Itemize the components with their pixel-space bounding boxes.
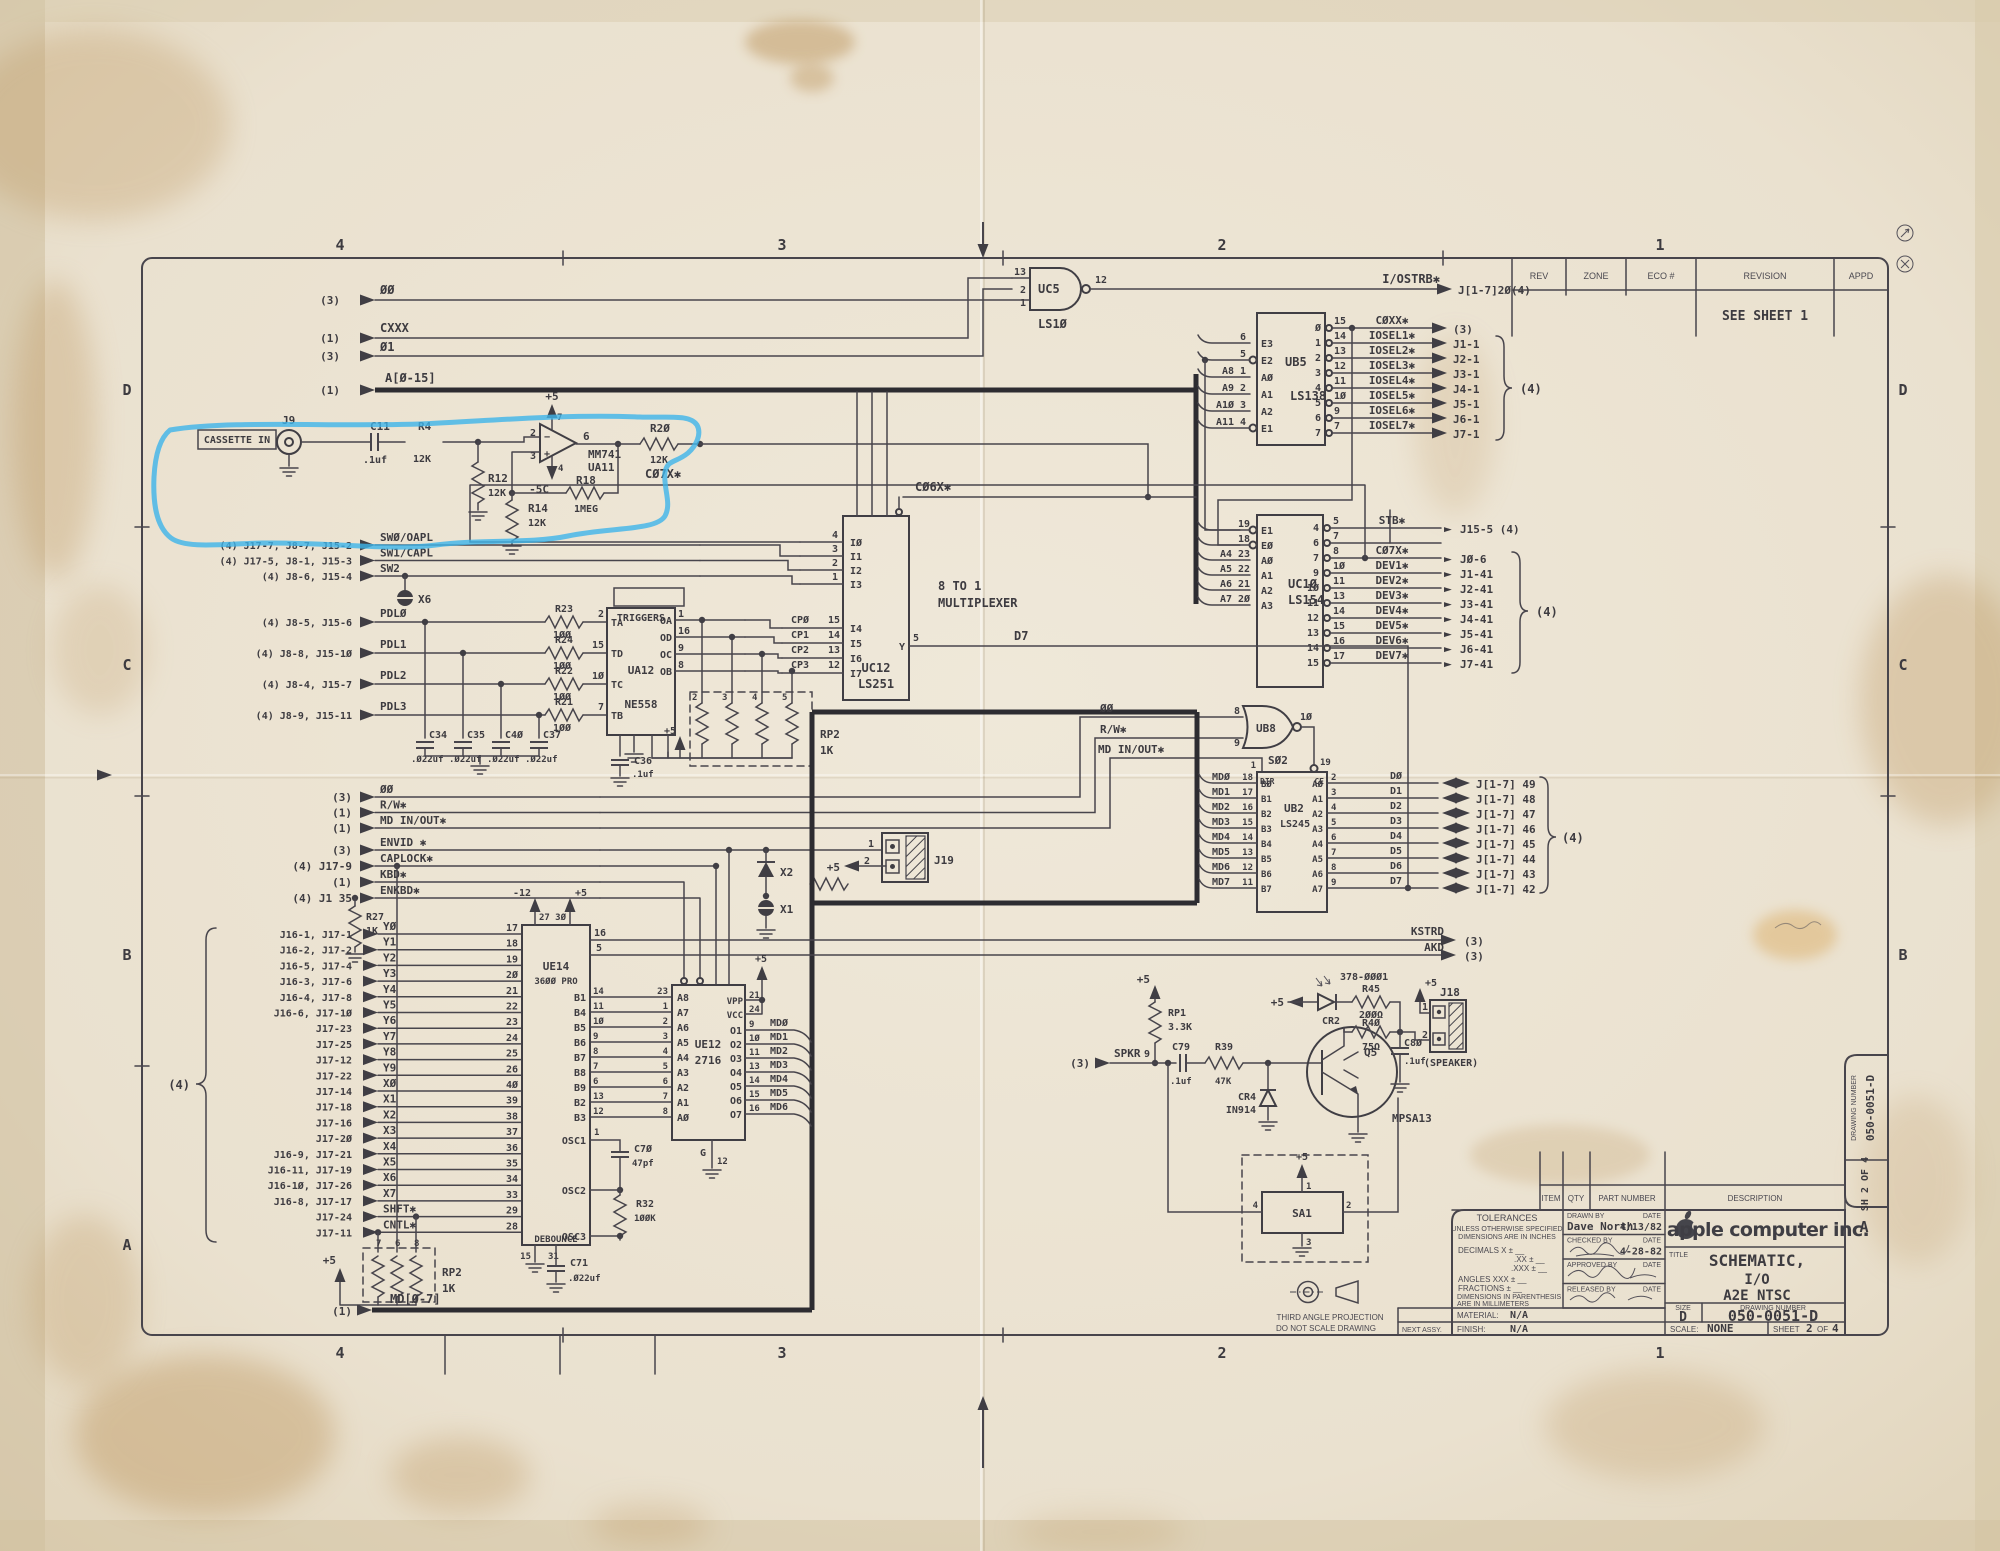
source-label: J16-6, J17-1Ø <box>274 1008 352 1020</box>
pin-label: 11 <box>1242 878 1253 888</box>
net-label: D4 <box>1390 831 1402 842</box>
pin-label: 13 <box>749 1062 760 1072</box>
pin-label: 4 <box>1331 803 1337 813</box>
arrow-icon: ► <box>1444 597 1452 612</box>
pin-label: 9 <box>1334 406 1340 417</box>
ic-pin-name: I4 <box>850 624 862 635</box>
pin-label: 7 <box>598 702 604 713</box>
pin-label: 3 <box>832 544 838 555</box>
ic-pin-name: A2 <box>677 1083 689 1094</box>
net-label: D6 <box>1390 861 1402 872</box>
zone-letter: D <box>1898 381 1907 399</box>
source-label: J16-11, J17-19 <box>268 1166 352 1177</box>
ic-pin-name: B2 <box>574 1098 586 1109</box>
source-label: J17-11 <box>316 1228 352 1239</box>
tolerance-row: .XX ± __ <box>1514 1255 1545 1264</box>
ic-pin-name: TC <box>611 680 623 691</box>
rev-header: REV <box>1530 271 1549 281</box>
ic-pin-name: A4 <box>1312 840 1323 850</box>
finish-label: FINISH: <box>1457 1325 1485 1334</box>
net-label: DEV1✱ <box>1375 559 1408 572</box>
zone-letter: A <box>122 1236 131 1254</box>
projection-note: THIRD ANGLE PROJECTION <box>1276 1313 1383 1322</box>
group-label: (4) <box>1536 605 1558 619</box>
net-label: MD5 <box>1212 847 1230 858</box>
pin-label: 7 <box>1333 531 1339 542</box>
net-label: CAPLOCK✱ <box>380 852 433 865</box>
net-label: MD6 <box>1212 862 1230 873</box>
pin-label: 2 <box>1346 1201 1351 1211</box>
ic-pin-name: B6 <box>1261 870 1272 880</box>
net-label: MD4 <box>1212 832 1230 843</box>
pin-label: 11 <box>749 1048 760 1058</box>
pin-label: 6 <box>583 430 590 443</box>
ic-pin-name: 4 <box>1313 523 1319 534</box>
part-value: 378-ØØØ1 <box>1340 971 1388 983</box>
net-label: CØXX✱ <box>1375 314 1408 327</box>
ic-pin-name: 9 <box>1313 568 1319 579</box>
ic-pin-name: 6 <box>1313 538 1319 549</box>
dest-label: J[1-7] 48 <box>1476 793 1536 806</box>
part-ref: R24 <box>555 635 573 646</box>
ic-pin-name: A7 <box>1312 885 1323 895</box>
net-label: MDØ <box>1212 771 1230 783</box>
pin-label: 14 <box>1242 833 1253 843</box>
net-label: A8 <box>1222 366 1234 377</box>
ic-pin-name: B1 <box>1261 795 1272 805</box>
ic-pin-name: Ø <box>1314 322 1321 334</box>
power-label: -12 <box>513 888 531 899</box>
pin-label: 2 <box>1422 1030 1428 1041</box>
power-label: +5 <box>827 861 840 874</box>
opamp-plus: + <box>544 449 550 460</box>
part-ref: MM741 <box>588 448 621 461</box>
ic-pin-group: TRIGGERS <box>617 613 665 624</box>
drawing-title: A2E NTSC <box>1723 1288 1790 1304</box>
dest-label: J15-5 (4) <box>1460 523 1520 536</box>
pin-label: 8 <box>678 660 684 671</box>
ic-part: LS251 <box>858 677 894 691</box>
net-label: Y7 <box>383 1030 396 1043</box>
ic-pin-name: 7 <box>1315 428 1321 439</box>
source-label: J17-25 <box>316 1040 352 1051</box>
source-label: J17-14 <box>316 1087 352 1098</box>
ic-pin-name: I3 <box>850 580 862 591</box>
net-label: R/W✱ <box>1100 723 1127 736</box>
zone-number: 4 <box>335 236 344 254</box>
pin-label: 26 <box>506 1064 518 1075</box>
qty-label: (1) <box>332 822 352 835</box>
source-label: J16-8, J17-17 <box>274 1197 352 1208</box>
pin-label: 3 <box>722 693 727 703</box>
zone-number: 4 <box>335 1344 344 1362</box>
zone-letter: B <box>122 946 131 964</box>
source-label: J17-23 <box>316 1024 352 1035</box>
net-label: DEV4✱ <box>1375 604 1408 617</box>
pin-label: 14 <box>1333 606 1345 617</box>
ic-pin-name: A1 <box>1261 571 1273 582</box>
material-value: N/A <box>1510 1310 1528 1321</box>
net-label: X2 <box>383 1108 396 1121</box>
pin-label: 28 <box>506 1221 518 1232</box>
sheet-number: 2 <box>1806 1322 1813 1335</box>
pin-label: 21 <box>506 986 518 997</box>
net-label: IOSEL2✱ <box>1369 344 1416 357</box>
pin-label: 8 <box>593 1047 598 1057</box>
pin-label: 14 <box>828 630 840 641</box>
dest-label: J[1-7] 43 <box>1476 868 1536 881</box>
pin-label: 1 <box>1306 1182 1311 1192</box>
net-label: STB✱ <box>1379 514 1406 527</box>
ic-ref: UC12 <box>862 661 891 675</box>
net-label: DØ <box>1390 770 1402 782</box>
title-label: TITLE <box>1669 1252 1688 1259</box>
pin-label: 11 <box>593 1002 604 1012</box>
part-ref: C79 <box>1172 1042 1190 1053</box>
net-label: SHFT✱ <box>383 1203 416 1216</box>
pin-label: 12 <box>717 1157 728 1167</box>
ic-pin-name: E1 <box>1261 526 1273 537</box>
bus-label: MD[Ø-7] <box>390 1292 441 1306</box>
pin-label: 23 <box>657 987 668 997</box>
net-label: A1Ø <box>1216 399 1234 411</box>
part-ref: R21 <box>555 697 573 708</box>
source-label: J16-1, J17-1 <box>280 930 352 941</box>
ic-pin-name: A6 <box>1312 870 1323 880</box>
pin-label: 31 <box>548 1252 559 1262</box>
pin-label: 35 <box>506 1159 518 1170</box>
pin-label: 14 <box>593 987 604 997</box>
net-label: Y8 <box>383 1046 396 1059</box>
net-label: D2 <box>1390 801 1402 812</box>
source-label: J16-1Ø, J17-26 <box>268 1180 352 1192</box>
pin-label: 36 <box>506 1143 518 1154</box>
ic-pin-name: TB <box>611 711 623 722</box>
tab-drawing-number-label: DRAWING NUMBER <box>1851 1075 1858 1141</box>
scanned-schematic-sheet: 4 3 2 1 4 3 2 1 D C B A D C B A REV ZONE… <box>0 0 2000 1551</box>
pin-label: 15 <box>592 640 604 651</box>
ic-part: NE558 <box>624 698 657 711</box>
net-label: PDL3 <box>380 700 407 713</box>
source-label: (4) J17-9 <box>292 860 352 873</box>
ic-pin-name: O5 <box>730 1082 742 1093</box>
net-label: PDL1 <box>380 638 407 651</box>
part-ref: X1 <box>780 903 794 916</box>
ic-pin-name: OB <box>660 667 672 678</box>
net-label: X6 <box>383 1171 397 1184</box>
scale-label: SCALE: <box>1670 1325 1698 1334</box>
zone-letter: B <box>1898 946 1907 964</box>
dest-label: J7-41 <box>1460 658 1493 671</box>
net-label: MD1 <box>770 1032 788 1043</box>
net-label: DEV3✱ <box>1375 589 1408 602</box>
net-label: ØØ <box>379 783 394 796</box>
net-label: X1 <box>383 1093 397 1106</box>
ic-pin-name: I1 <box>850 552 862 563</box>
ic-pin-name: 4 <box>1315 383 1321 394</box>
ic-pin-name: 1 <box>1315 338 1321 349</box>
pin-label: 1Ø <box>593 1016 604 1027</box>
pin-label: 19 <box>506 954 518 965</box>
arrow-icon: ► <box>1444 657 1452 672</box>
part-value: 12K <box>413 454 431 465</box>
pin-label: 15 <box>1242 818 1253 828</box>
ic-type: MULTIPLEXER <box>938 596 1018 610</box>
ic-pin-name: B4 <box>574 1008 586 1019</box>
source-label: (1) <box>332 876 352 889</box>
source-label: (4) J8-8, J15-1Ø <box>256 648 352 660</box>
pin-label: 1Ø <box>1334 390 1346 402</box>
dest-label: J[1-7] 49 <box>1476 778 1536 791</box>
signoff-date-label: DATE <box>1643 1238 1661 1245</box>
ic-pin-name: OA <box>660 616 672 627</box>
zone-number: 3 <box>777 1344 786 1362</box>
pin-label: 3 <box>663 1032 668 1042</box>
source-label: J16-5, J17-4 <box>280 961 352 972</box>
pin-label: 2 <box>1020 285 1026 296</box>
dest-label: J1-41 <box>1460 568 1493 581</box>
arrow-icon: ► <box>1444 522 1452 537</box>
pin-label: 8 <box>1333 546 1339 557</box>
qty-label: (1) <box>332 807 352 820</box>
part-value: 12K <box>650 455 668 466</box>
net-label: Y5 <box>383 999 396 1012</box>
pin-label: 17 <box>1242 788 1253 798</box>
part-ref: X2 <box>780 866 793 879</box>
part-ref: C71 <box>570 1258 588 1269</box>
dest-label: J2-41 <box>1460 583 1493 596</box>
drawing-title: I/O <box>1744 1272 1769 1288</box>
part-ref: R12 <box>488 472 508 485</box>
pin-label: 9 <box>593 1032 598 1042</box>
parts-header: PART NUMBER <box>1598 1194 1656 1203</box>
pin-label: 2 <box>663 1017 668 1027</box>
zone-letter: C <box>122 656 131 674</box>
sheet-total: 4 <box>1832 1322 1839 1335</box>
ic-ref: UE12 <box>695 1038 722 1051</box>
ic-pin-name: 12 <box>1307 613 1319 624</box>
signoff-label: APPROVED BY <box>1567 1262 1618 1269</box>
dest-label: J2-1 <box>1453 353 1480 366</box>
net-label: PDLØ <box>380 607 407 620</box>
pin-label: 13 <box>1334 346 1346 357</box>
pin-label: 13 <box>1333 591 1345 602</box>
net-label: Y1 <box>383 936 397 949</box>
ic-pin-name: B3 <box>1261 825 1272 835</box>
source-label: J16-9, J17-21 <box>274 1150 352 1161</box>
ic-pin-name: A1 <box>1261 390 1273 401</box>
ic-pin-name: B5 <box>574 1023 586 1034</box>
pin-label: 18 <box>506 939 518 950</box>
power-label: +5 <box>1271 996 1284 1009</box>
part-value: .1uf <box>1404 1057 1426 1067</box>
ic-pin-name: B3 <box>574 1113 586 1124</box>
ic-part: 2716 <box>695 1054 722 1067</box>
pin-label: 5 <box>596 943 602 954</box>
net-label: A7 <box>1220 594 1232 605</box>
ic-pin-name: A3 <box>677 1068 689 1079</box>
zone-number: 3 <box>777 236 786 254</box>
ic-part: SØ2 <box>1268 754 1288 767</box>
tolerance-row: ANGLES XXX ± __ <box>1458 1275 1527 1284</box>
signoff-date: 4/13/82 <box>1620 1222 1662 1233</box>
source-label: J16-4, J17-8 <box>280 993 352 1004</box>
rev-header: ECO # <box>1647 271 1674 281</box>
pin-label: 2 <box>1331 773 1336 783</box>
company-name: apple computer inc. <box>1667 1219 1869 1241</box>
ic-pin-name: G <box>700 1148 706 1159</box>
net-label: Y4 <box>383 983 397 996</box>
net-label: MD3 <box>770 1060 788 1071</box>
pin-label: 34 <box>506 1174 518 1185</box>
pin-label: 15 <box>520 1252 531 1262</box>
source-label: (4) J8-5, J15-6 <box>262 618 352 629</box>
qty-label: (3) <box>332 791 352 804</box>
pin-label: 12 <box>593 1107 604 1117</box>
pin-label: 1Ø <box>1333 560 1345 572</box>
net-label: MD3 <box>1212 817 1230 828</box>
part-value: 47K <box>1215 1077 1232 1087</box>
arrow-icon: ► <box>1444 642 1452 657</box>
pin-label: 1 <box>1251 761 1256 771</box>
ic-part: 36ØØ PRO <box>534 976 578 987</box>
pin-label: 6 <box>1331 833 1336 843</box>
scale-value: NONE <box>1707 1322 1734 1335</box>
pin-label: 9 <box>1331 878 1336 888</box>
ic-ref: UE14 <box>543 960 570 973</box>
ic-pin-name: AØ <box>1312 779 1323 790</box>
net-label: D7 <box>1390 876 1402 887</box>
dest-label: J6-1 <box>1453 413 1480 426</box>
pin-label: 3Ø <box>555 912 566 923</box>
net-label: A4 <box>1220 549 1232 560</box>
power-label: +5 <box>323 1254 336 1267</box>
connector-ref: J19 <box>934 854 954 867</box>
ic-pin-name: I2 <box>850 566 862 577</box>
source-label: J17-16 <box>316 1118 352 1129</box>
ic-ref: UA11 <box>588 461 615 474</box>
part-value: 12K <box>488 488 506 499</box>
ic-part: LS1Ø <box>1038 317 1068 331</box>
part-value: .1uf <box>1170 1077 1192 1087</box>
ic-ref: UB8 <box>1256 722 1276 735</box>
tab-sheet: SH 2 OF 4 <box>1860 1157 1871 1211</box>
net-label: IOSEL3✱ <box>1369 359 1416 372</box>
ic-pin-name: DEBOUNCE <box>534 1235 577 1245</box>
pin-label: 9 <box>749 1020 754 1030</box>
pin-label: 1 <box>1422 1002 1428 1013</box>
ic-pin-name: AØ <box>1261 555 1273 567</box>
dest-label: (3) <box>1464 950 1484 963</box>
net-label: R/W✱ <box>380 799 407 812</box>
net-label: DEV2✱ <box>1375 574 1408 587</box>
ic-pin-name: AØ <box>677 1112 689 1124</box>
net-label: SW2 <box>380 562 400 575</box>
net-label: PDL2 <box>380 669 407 682</box>
pin-label: 24 <box>506 1033 518 1044</box>
net-label: D1 <box>1390 786 1402 797</box>
ic-pin-name: A1 <box>677 1098 689 1109</box>
net-label: CP2 <box>791 645 809 656</box>
tolerance-note: DIMENSIONS IN PARENTHESIS <box>1457 1294 1561 1301</box>
pin-label: 25 <box>506 1049 518 1060</box>
pin-label: 9 <box>1234 738 1240 749</box>
ic-pin-name: I6 <box>850 654 862 665</box>
ic-pin-name: A7 <box>677 1008 689 1019</box>
net-label: IOSEL7✱ <box>1369 419 1416 432</box>
net-label: CXXX <box>380 321 410 335</box>
pin-label: 1 <box>1020 298 1026 309</box>
net-label: IOSEL6✱ <box>1369 404 1416 417</box>
net-label: IOSEL4✱ <box>1369 374 1416 387</box>
dest-label: J[1-7] 47 <box>1476 808 1536 821</box>
pin-label: 9 <box>678 643 684 654</box>
source-label: J17-22 <box>316 1071 352 1082</box>
net-label: CPØ <box>791 614 809 626</box>
ic-pin-name: 7 <box>1313 553 1319 564</box>
part-value: 3.3K <box>1168 1022 1192 1033</box>
tolerance-note: UNLESS OTHERWISE SPECIFIED <box>1451 1226 1562 1233</box>
net-label: D5 <box>1390 846 1402 857</box>
net-label: D3 <box>1390 816 1402 827</box>
pin-label: 1 <box>663 1002 668 1012</box>
pin-label: 2 <box>530 428 536 439</box>
pin-label: 3 <box>1331 788 1336 798</box>
net-label: KBD✱ <box>380 868 407 881</box>
part-ref: C34 <box>429 730 447 741</box>
ic-pin-name: O2 <box>730 1040 742 1051</box>
net-label: DEV6✱ <box>1375 634 1408 647</box>
dest-label: J6-41 <box>1460 643 1493 656</box>
ic-pin-name: O7 <box>730 1110 742 1121</box>
parts-header: DESCRIPTION <box>1728 1194 1783 1203</box>
pin-label: 4 <box>1253 1201 1259 1211</box>
part-ref: C8Ø <box>1404 1037 1422 1049</box>
pin-label: 12 <box>828 660 840 671</box>
signoff-label: DRAWN BY <box>1567 1213 1605 1220</box>
rev-note: SEE SHEET 1 <box>1722 309 1808 324</box>
net-label: MD6 <box>770 1102 788 1113</box>
dest-label: J[1-7] 44 <box>1476 853 1536 866</box>
ic-pin-name: BØ <box>1261 779 1272 790</box>
ic-pin-name: A3 <box>1312 825 1323 835</box>
arrow-icon: ► <box>1444 582 1452 597</box>
projection-note: DO NOT SCALE DRAWING <box>1276 1324 1376 1333</box>
ic-pin-name: OSC1 <box>562 1136 586 1147</box>
pin-label: 8 <box>1234 706 1240 717</box>
next-assy-label: NEXT ASSY. <box>1402 1327 1442 1334</box>
pin-label: 4 <box>752 693 758 703</box>
ic-pin-name: E3 <box>1261 339 1273 350</box>
pin-label: 11 <box>1333 576 1345 587</box>
ic-pin-name: B1 <box>574 993 586 1004</box>
power-label: +5 <box>664 726 676 737</box>
net-label: DEV5✱ <box>1375 619 1408 632</box>
pin-label: 2 <box>1240 383 1246 394</box>
pin-label: 18 <box>1242 773 1253 783</box>
dest-label: (3) <box>1464 935 1484 948</box>
zone-number: 1 <box>1655 236 1664 254</box>
part-ref: X6 <box>418 593 432 606</box>
pin-label: 2Ø <box>506 969 518 981</box>
net-label: YØ <box>383 920 397 933</box>
parts-header: ITEM <box>1541 1194 1560 1203</box>
pin-label: 2 <box>598 609 604 620</box>
net-label: I/OSTRB✱ <box>1382 272 1440 286</box>
net-label: A5 <box>1220 564 1232 575</box>
pin-label: 5 <box>913 633 919 644</box>
net-label: SPKR <box>1114 1047 1141 1060</box>
